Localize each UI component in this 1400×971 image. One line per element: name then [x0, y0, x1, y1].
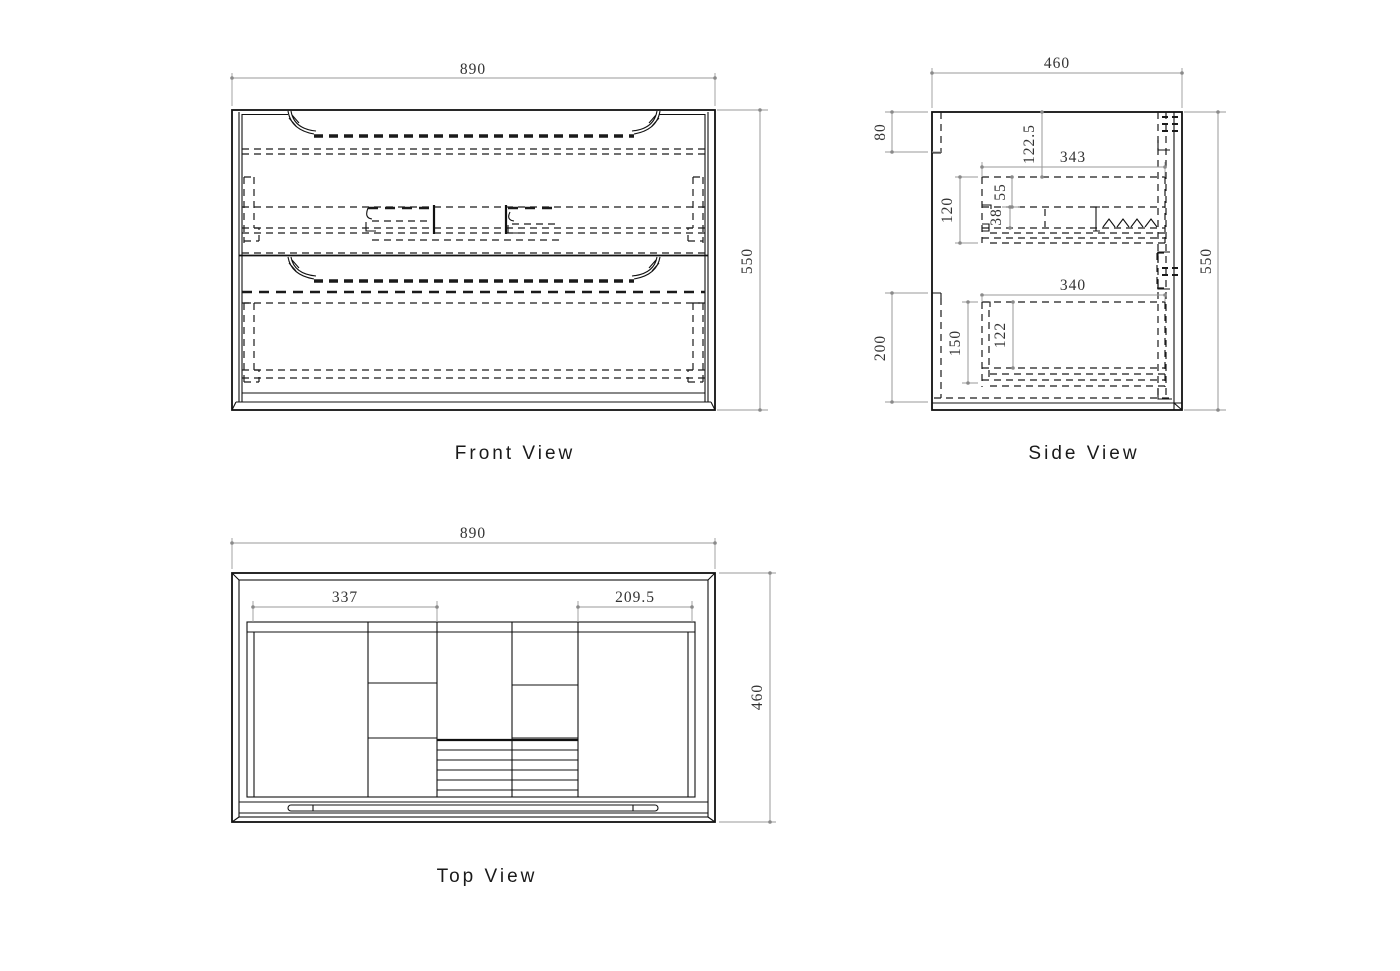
- cad-drawing-sheet: 890 550 Front View: [0, 0, 1400, 971]
- top-view-dimensions: 890 460 337 209.5: [232, 525, 776, 822]
- side-drawer1-height-dimension: 120: [939, 197, 956, 223]
- front-view-label: Front View: [455, 443, 575, 464]
- side-38-dimension: 38: [988, 208, 1005, 226]
- top-right-section-dimension: 209.5: [615, 589, 655, 606]
- side-drawer1-depth-dimension: 343: [1060, 149, 1086, 166]
- side-drawer1-top-dimension: 122.5: [1021, 124, 1038, 164]
- top-left-section-dimension: 337: [332, 589, 358, 606]
- side-view-front-panels: [1157, 112, 1180, 400]
- front-width-dimension: 890: [460, 61, 486, 78]
- side-drawer2-height-dimension: 150: [947, 330, 964, 356]
- front-view-bottom-drawer: [242, 257, 705, 383]
- side-height-dimension: 550: [1198, 248, 1215, 274]
- side-122-dimension: 122: [992, 322, 1009, 348]
- side-view-cabinet-outline: [932, 112, 1182, 410]
- front-view-top-drawer: [242, 111, 705, 253]
- side-view-label: Side View: [1028, 443, 1139, 464]
- side-view-bottom-drawer: [982, 302, 1165, 387]
- top-view-drawer-organizer: [247, 622, 695, 797]
- top-width-dimension: 890: [460, 525, 486, 542]
- top-depth-dimension: 460: [749, 684, 766, 710]
- front-view: 890 550 Front View: [232, 61, 768, 464]
- side-drawer2-depth-dimension: 340: [1060, 277, 1086, 294]
- front-height-dimension: 550: [739, 248, 756, 274]
- side-bottom-offset-dimension: 200: [872, 335, 889, 361]
- front-view-cabinet-outline: [232, 110, 715, 410]
- side-view-top-drawer: [982, 177, 1165, 243]
- top-view-label: Top View: [437, 866, 538, 887]
- side-top-offset-dimension: 80: [872, 123, 889, 141]
- side-view-dimensions: 460 550 80 122.5 343 120 55 38 200 150 1…: [872, 55, 1226, 410]
- side-55-dimension: 55: [992, 183, 1009, 201]
- drawing-svg: 890 550 Front View: [0, 0, 1400, 971]
- side-view: 460 550 80 122.5 343 120 55 38 200 150 1…: [872, 55, 1226, 464]
- top-view-cabinet-outline: [232, 573, 715, 822]
- side-width-dimension: 460: [1044, 55, 1070, 72]
- top-view: 890 460 337 209.5 Top View: [232, 525, 776, 887]
- top-view-front-edge: [239, 802, 708, 813]
